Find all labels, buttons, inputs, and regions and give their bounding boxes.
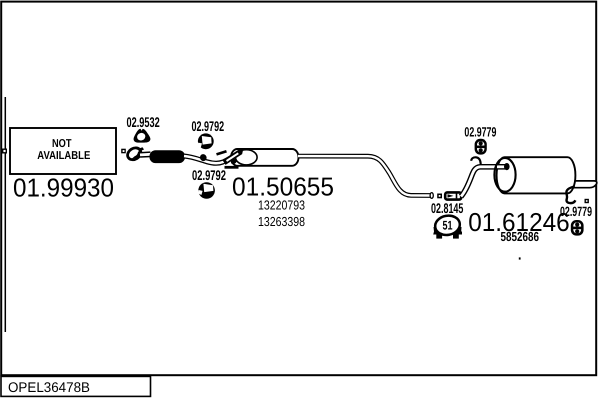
svg-text:02.9779: 02.9779 [464,125,496,140]
svg-text:OPEL36478B: OPEL36478B [8,379,90,395]
svg-text:NOT: NOT [52,138,72,150]
svg-text:5852686: 5852686 [501,229,540,244]
svg-text:AVAILABLE: AVAILABLE [37,150,90,162]
svg-text:02.8145: 02.8145 [431,200,464,216]
svg-text:13263398: 13263398 [258,214,305,229]
svg-text:02.9792: 02.9792 [192,167,226,183]
svg-text:51: 51 [443,219,453,233]
svg-text:01.99930: 01.99930 [13,173,114,203]
svg-text:02.9792: 02.9792 [192,118,225,134]
svg-text:13220793: 13220793 [258,198,305,213]
svg-text:02.9532: 02.9532 [127,114,160,130]
